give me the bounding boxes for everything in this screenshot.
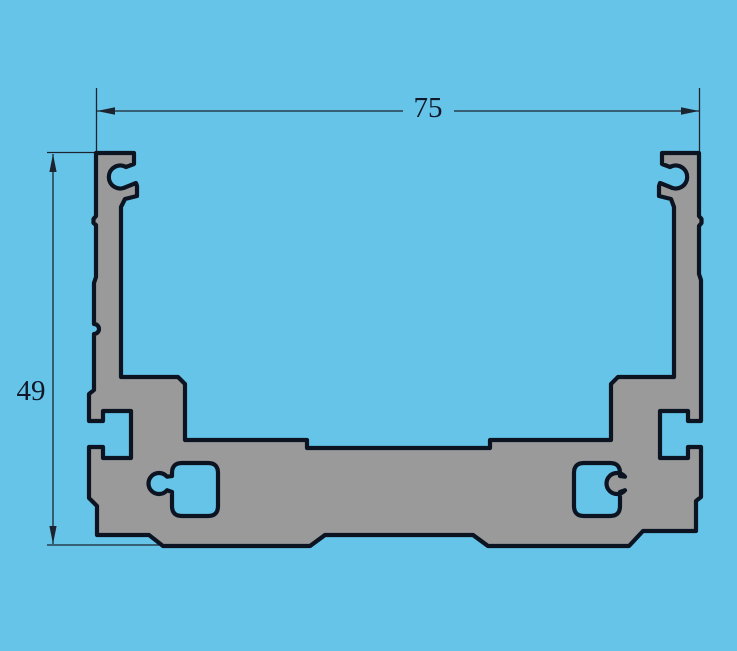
- width-dimension: 75: [97, 88, 700, 151]
- arrowhead-up-icon: [49, 154, 56, 172]
- width-dimension-label: 75: [414, 92, 443, 124]
- arrowhead-left-icon: [97, 107, 115, 115]
- arrowhead-right-icon: [681, 107, 699, 115]
- drawing-canvas: 75 49: [0, 0, 737, 651]
- technical-drawing: 75 49: [0, 0, 737, 651]
- arrowhead-down-icon: [49, 526, 56, 544]
- height-dimension-label: 49: [17, 375, 46, 407]
- extrusion-profile-outline: [89, 153, 702, 546]
